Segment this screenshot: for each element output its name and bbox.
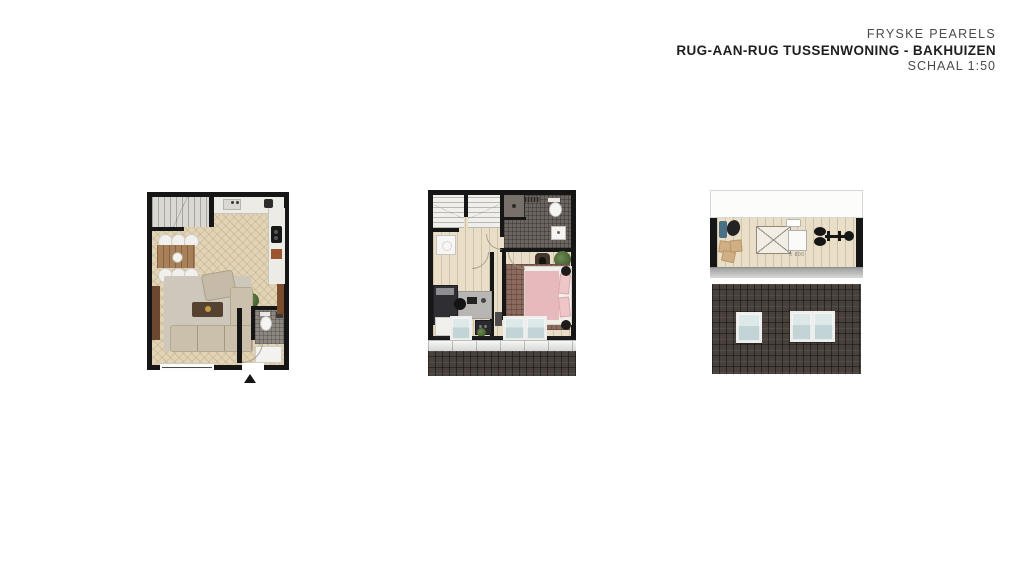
roof-window (736, 312, 762, 343)
roof-window (790, 311, 813, 342)
wc (549, 202, 562, 217)
washing-machine (436, 235, 456, 255)
wc (260, 316, 272, 331)
stair-flight-down (433, 195, 464, 228)
coffee-machine (264, 199, 273, 208)
entrance-opening (242, 363, 264, 370)
roof-plane (712, 284, 861, 374)
skylight-small (786, 219, 801, 227)
roof-edge-tiles (428, 351, 576, 376)
burner-icon (274, 236, 278, 240)
staircase (152, 197, 209, 227)
table-decor (172, 252, 183, 263)
first-floor-plan (428, 190, 576, 376)
bed-pillow (558, 296, 571, 317)
washbasin (551, 226, 566, 240)
shower-drain-icon (512, 204, 516, 208)
stair-void-opening (756, 226, 791, 254)
basin-drain-icon (557, 231, 560, 234)
desk-lamp-icon (481, 298, 486, 303)
burner-icon (274, 230, 278, 234)
nightstand (561, 266, 571, 276)
front-window (160, 363, 214, 371)
attic-floor-band: ± 800 (710, 218, 863, 267)
scale-label: SCHAAL 1:50 (676, 59, 996, 74)
corridor-radiator (495, 312, 502, 326)
attic-wall-left (710, 218, 717, 267)
roof-gutter (710, 267, 863, 278)
attic-wall-right (856, 218, 863, 267)
nightstand (561, 320, 571, 330)
faucet-icon (236, 201, 239, 204)
knob-icon (484, 325, 487, 328)
dimension-label: ± 800 (782, 252, 812, 258)
bed-duvet (525, 271, 559, 320)
shower (504, 195, 525, 217)
stair-flight-up (468, 195, 500, 228)
ground-floor-plan (147, 192, 289, 370)
pouf (721, 250, 736, 263)
shower-partition (504, 217, 526, 220)
table-bowl (205, 306, 211, 312)
entrance-arrow-icon (244, 374, 256, 383)
stair-divider-wall (464, 195, 468, 217)
barbell-plate-icon (827, 231, 830, 241)
dormer-window (450, 316, 472, 341)
kitchen-counter-side (268, 208, 285, 284)
drawing-title: RUG-AAN-RUG TUSSENWONING - BAKHUIZEN (676, 43, 996, 58)
project-name: FRYSKE PEARELS (676, 27, 996, 42)
dormer-window (525, 316, 547, 341)
hall-door (277, 284, 284, 314)
barbell-plate-icon (838, 231, 841, 241)
roof-window (812, 311, 835, 342)
stair-wall (433, 228, 459, 232)
floorplan-sheet: { "header": { "project_name": "FRYSKE PE… (0, 0, 1024, 568)
skylight (788, 230, 807, 251)
fitness-seat (844, 231, 854, 241)
kitchen-cutting-board (271, 249, 282, 259)
sideboard (152, 286, 160, 340)
bathroom (504, 195, 571, 248)
radiator (525, 197, 540, 202)
title-block: FRYSKE PEARELS RUG-AAN-RUG TUSSENWONING … (676, 27, 996, 74)
dormer-window (503, 316, 526, 341)
faucet-icon (231, 201, 234, 204)
laptop-icon (467, 297, 477, 304)
stair-wall (152, 227, 184, 231)
office-chair (454, 298, 466, 310)
bed-pillow (558, 273, 571, 294)
bed-pillow (436, 288, 454, 295)
cooktop (271, 226, 282, 243)
washer-door-icon (442, 241, 452, 251)
roof-ridge-band (710, 190, 863, 218)
attic-roof-plan: ± 800 (710, 190, 863, 374)
window-glass-line (162, 367, 212, 368)
fitness-bench (814, 237, 826, 246)
